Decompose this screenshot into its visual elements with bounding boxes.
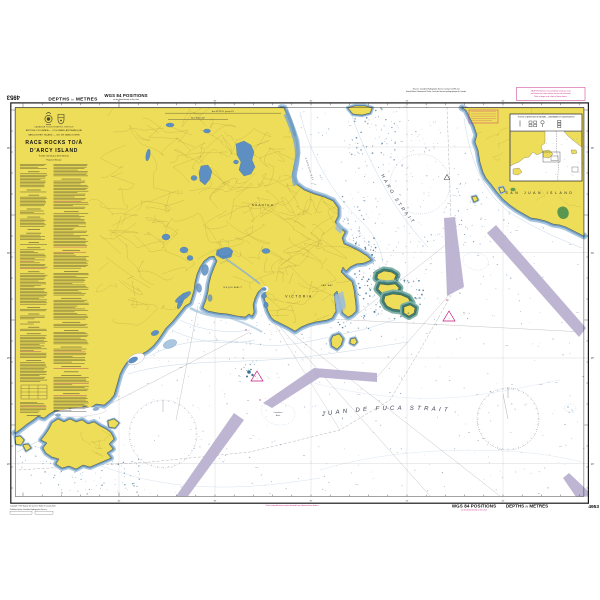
svg-text:WGS 84 POSITIONS: WGS 84 POSITIONS	[452, 504, 496, 509]
svg-text:VICTORIA: VICTORIA	[285, 295, 313, 299]
svg-text:CANADIAN HYDROGRAPHIC SERVICE: CANADIAN HYDROGRAPHIC SERVICE	[34, 126, 74, 129]
svg-text:VANCOUVER ISLAND — ÎLE DE VANC: VANCOUVER ISLAND — ÎLE DE VANCOUVER	[28, 134, 80, 137]
svg-text:Constance: Constance	[273, 411, 282, 414]
svg-text:Published by the Canadian Hydr: Published by the Canadian Hydrographic S…	[10, 508, 47, 511]
svg-text:Refer to larger scale charts o: Refer to larger scale charts of these wa…	[534, 95, 567, 98]
svg-text:RACE ROCKS TO/À: RACE ROCKS TO/À	[25, 139, 82, 146]
svg-text:can be plotted directly on thi: can be plotted directly on this chart	[461, 509, 488, 512]
svg-text:CAUTION: Mariners are warned t: CAUTION: Mariners are warned that numero…	[531, 89, 571, 92]
svg-text:4953: 4953	[6, 94, 20, 100]
svg-text:United States Government Chart: United States Government Charts. Levés d…	[406, 90, 466, 93]
svg-text:and shoals exist close inshore: and shoals exist close inshore and are n…	[531, 92, 572, 95]
svg-text:OAK BAY: OAK BAY	[321, 284, 333, 287]
svg-text:ESQUIMALT: ESQUIMALT	[224, 286, 243, 289]
svg-text:Charts and publications may be: Charts and publications may be obtained …	[266, 504, 319, 507]
svg-text:D’ARCY ISLAND: D’ARCY ISLAND	[30, 148, 78, 154]
svg-text:DEPTHS in METRES: DEPTHS in METRES	[48, 97, 98, 103]
svg-text:Échelle 1:40 000 (Lat 48°25´N): Échelle 1:40 000 (Lat 48°25´N) Scale	[39, 154, 69, 157]
svg-text:4953: 4953	[588, 504, 599, 510]
svg-text:DEPTHS IN METRES: DEPTHS IN METRES	[506, 504, 548, 509]
svg-text:Copyright © Her Majesty the Qu: Copyright © Her Majesty the Queen in Rig…	[10, 505, 55, 508]
svg-text:SAN JUAN ISLAND: SAN JUAN ISLAND	[506, 191, 575, 195]
svg-text:Projection Mercator: Projection Mercator	[46, 159, 62, 162]
svg-text:SAANICH: SAANICH	[252, 203, 274, 207]
svg-text:WGS 84 POSITIONS: WGS 84 POSITIONS	[104, 93, 147, 98]
svg-text:Bank: Bank	[276, 415, 280, 417]
svg-text:BRITISH COLUMBIA — COLOMBIE-BR: BRITISH COLUMBIA — COLOMBIE-BRITANNIQUE	[26, 129, 83, 132]
